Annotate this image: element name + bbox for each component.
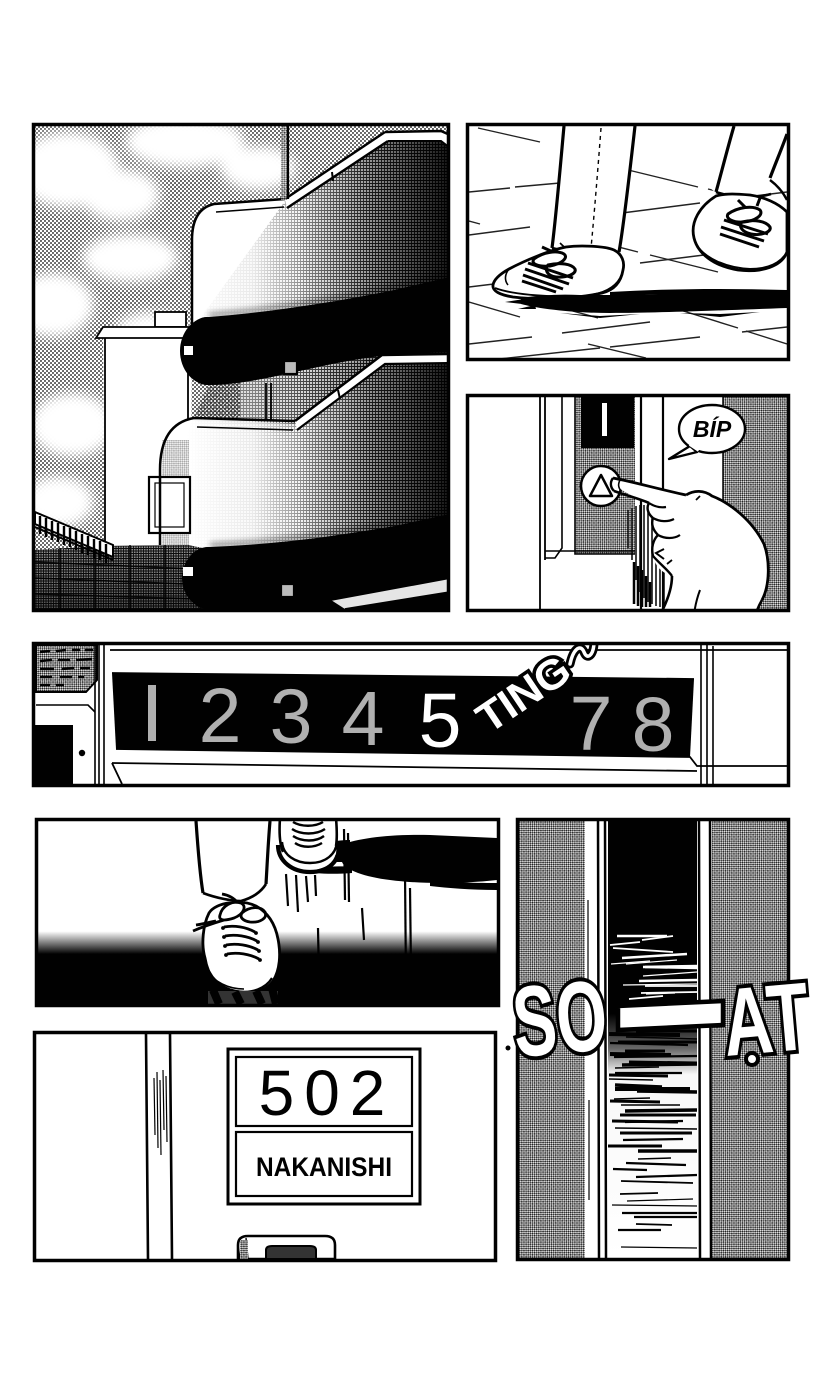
svg-text:SO: SO: [508, 959, 611, 1079]
svg-text:4: 4: [342, 676, 385, 762]
svg-text:BÍP: BÍP: [693, 415, 732, 442]
svg-text:NAKANISHI: NAKANISHI: [256, 1152, 392, 1182]
svg-text:502: 502: [259, 1057, 396, 1129]
svg-text:8: 8: [632, 682, 675, 768]
svg-text:AT: AT: [719, 963, 814, 1077]
svg-text:3: 3: [270, 674, 313, 760]
svg-text:7: 7: [570, 681, 613, 767]
svg-text:5: 5: [419, 678, 462, 764]
svg-text:2: 2: [199, 673, 242, 759]
